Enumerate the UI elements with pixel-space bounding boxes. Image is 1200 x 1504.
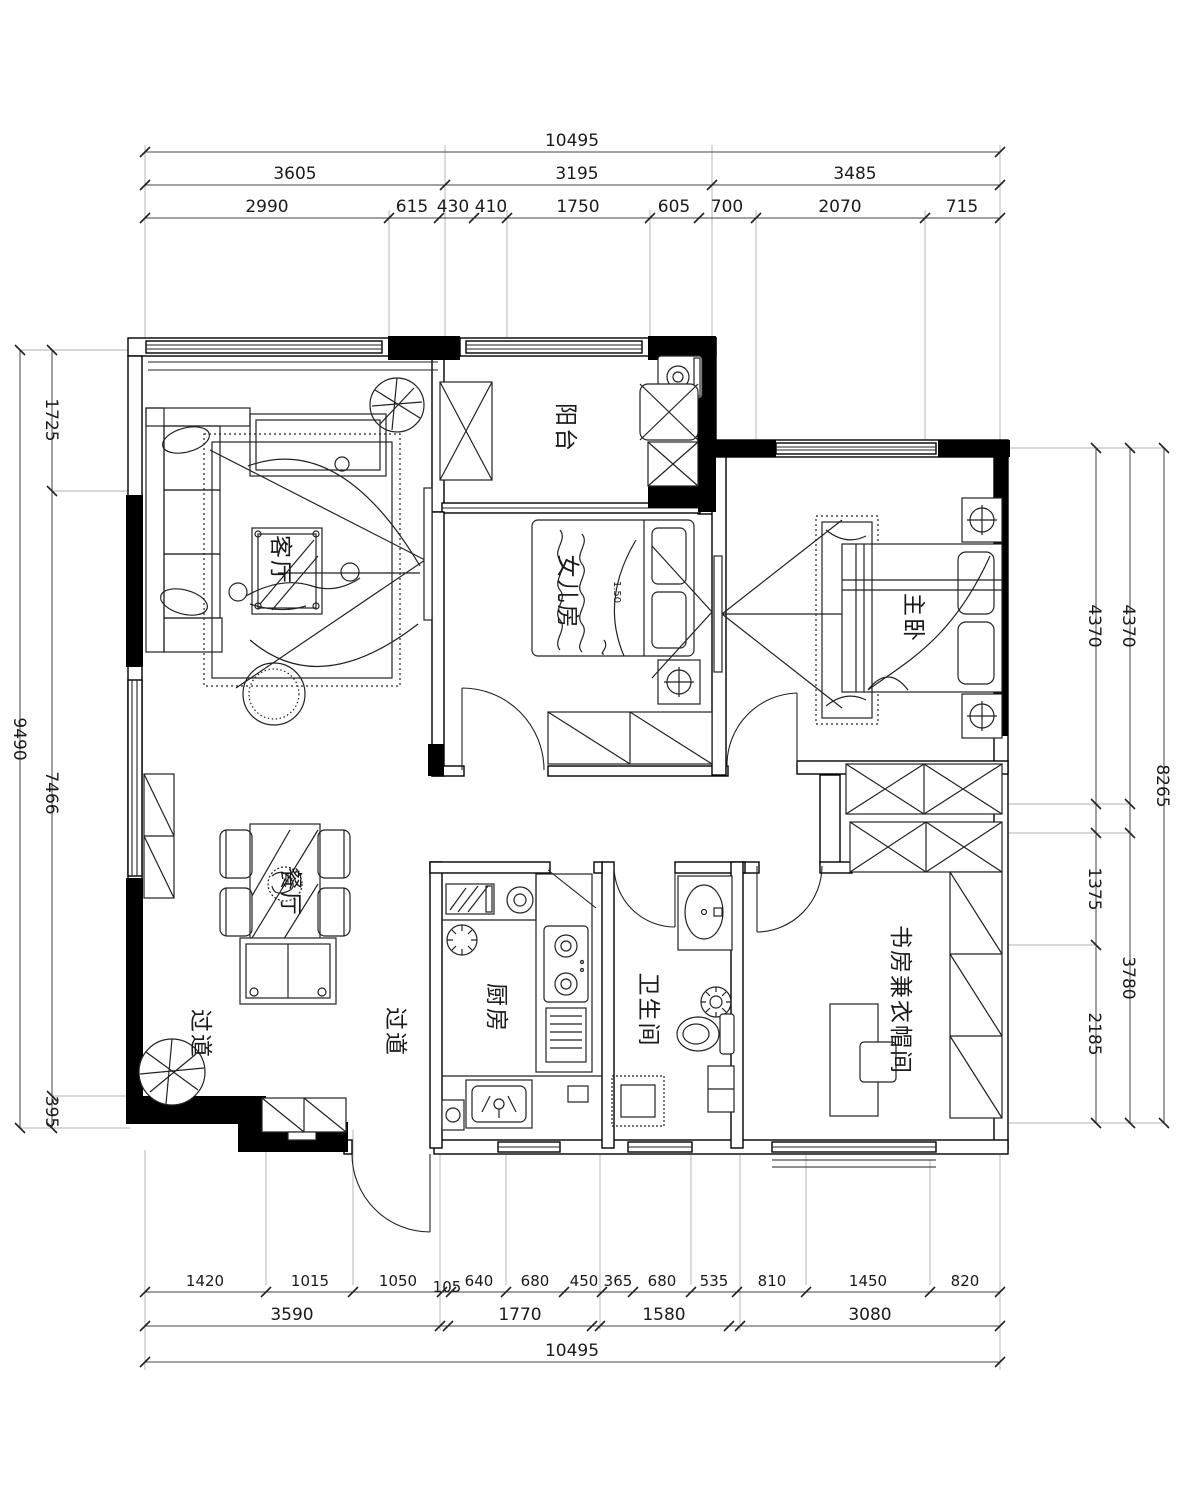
- living-plant: [370, 378, 424, 432]
- study-closet: [950, 872, 1002, 1118]
- dim-bot-450: 450: [570, 1272, 599, 1290]
- kitchen-cabinet-small: [442, 1100, 464, 1130]
- dim-bot-1580: 1580: [642, 1305, 685, 1325]
- dim-top-2070: 2070: [818, 197, 861, 217]
- dim-left-7466: 7466: [41, 771, 61, 814]
- daughter-room-door: [462, 688, 544, 770]
- microwave: [446, 884, 494, 914]
- shaft-column: [440, 382, 492, 480]
- desk: [830, 1004, 896, 1116]
- dim-right-4370a: 4370: [1084, 604, 1104, 647]
- dim-bot-3590: 3590: [270, 1305, 313, 1325]
- study-door: [757, 866, 822, 932]
- dim-top-2990: 2990: [245, 197, 288, 217]
- wall-cabinet: [144, 774, 174, 898]
- bath-window: [628, 1142, 692, 1152]
- dim-left-1725: 1725: [41, 398, 61, 441]
- dim-top-3605: 3605: [273, 164, 316, 184]
- dim-top-615: 615: [396, 197, 428, 217]
- dim-bot-1015: 1015: [291, 1272, 329, 1290]
- wardrobe-row-1: [846, 764, 1002, 814]
- dim-bot-680a: 680: [521, 1272, 550, 1290]
- kitchen-door-leaf: [548, 870, 596, 908]
- balcony: 阳台: [552, 356, 702, 486]
- dim-bot-535: 535: [700, 1272, 729, 1290]
- dim-right-3780: 3780: [1118, 956, 1138, 999]
- bath-cabinet: [708, 1066, 734, 1112]
- study-cloakroom: 书房兼衣帽间: [830, 764, 1002, 1118]
- living-room: 客厅: [146, 378, 432, 725]
- master-bedroom: 主卧: [714, 498, 1002, 738]
- dim-top-715: 715: [946, 197, 978, 217]
- dim-right-4370b: 4370: [1118, 604, 1138, 647]
- dim-bot-820: 820: [951, 1272, 980, 1290]
- windows: [128, 341, 936, 1167]
- dim-bot-1420: 1420: [186, 1272, 224, 1290]
- dim-top-3485: 3485: [833, 164, 876, 184]
- dim-top-430: 430: [437, 197, 469, 217]
- dim-bot-365: 365: [604, 1272, 633, 1290]
- dim-bot-810: 810: [758, 1272, 787, 1290]
- dim-top-1750: 1750: [556, 197, 599, 217]
- master-nightstand-top: [962, 498, 1002, 542]
- kitchen: 厨房: [442, 874, 602, 1130]
- dim-bot-680b: 680: [648, 1272, 677, 1290]
- dim-left-9490: 9490: [9, 717, 29, 760]
- daughter-bed-size: 1.50: [611, 581, 622, 603]
- master-window: [776, 443, 936, 454]
- daughter-room-label: 女儿房: [554, 555, 580, 630]
- dim-left-395: 395: [41, 1096, 61, 1128]
- dim-bot-1770: 1770: [498, 1305, 541, 1325]
- bathroom: 卫生间: [612, 876, 734, 1126]
- dim-top-700: 700: [711, 197, 743, 217]
- stove: [544, 926, 588, 1002]
- dim-bot-total: 10495: [545, 1341, 599, 1361]
- sideboard: [240, 938, 336, 1004]
- floor-plan-page: 10495 3605 3195 3485 2990 615 430 410 17…: [0, 0, 1200, 1500]
- tv-console: [250, 414, 386, 476]
- kitchen-grill: [546, 1008, 586, 1062]
- daughter-wardrobe: [548, 712, 712, 764]
- balcony-window: [466, 341, 642, 353]
- living-room-label: 客厅: [267, 535, 293, 585]
- sofa: [146, 408, 250, 652]
- exhaust-fan: [701, 987, 731, 1017]
- master-tv-panel: [714, 556, 722, 672]
- wardrobe-row-2: [850, 822, 1002, 872]
- dim-right-1375: 1375: [1084, 867, 1104, 910]
- dim-bot-3080: 3080: [848, 1305, 891, 1325]
- dining-window: [128, 680, 142, 876]
- toilet: [677, 1014, 734, 1054]
- floor-plan-drawing: 10495 3605 3195 3485 2990 615 430 410 17…: [0, 0, 1200, 1500]
- dining-area: 餐厅: [144, 774, 350, 1004]
- entry-door: [352, 1154, 430, 1232]
- balcony-cabinet: [640, 384, 698, 486]
- hall-right-label: 过道: [382, 1007, 408, 1057]
- dim-top-total: 10495: [545, 131, 599, 151]
- dim-top-3195: 3195: [555, 164, 598, 184]
- daughter-nightstand: [658, 660, 700, 704]
- dim-top-605: 605: [658, 197, 690, 217]
- dining-label: 餐厅: [277, 867, 303, 917]
- kitchen-window: [498, 1142, 560, 1152]
- study-label: 书房兼衣帽间: [887, 925, 913, 1075]
- dim-bot-105: 105: [433, 1278, 462, 1296]
- ottoman: [243, 663, 305, 725]
- dim-bot-1450: 1450: [849, 1272, 887, 1290]
- master-nightstand-bottom: [962, 694, 1002, 738]
- shower-mat: [612, 1076, 664, 1126]
- dim-right-8265: 8265: [1152, 764, 1172, 807]
- kitchen-label: 厨房: [483, 983, 509, 1033]
- dim-bot-640: 640: [465, 1272, 494, 1290]
- bath-label: 卫生间: [635, 973, 661, 1048]
- dim-bot-1050: 1050: [379, 1272, 417, 1290]
- master-room-door: [727, 693, 797, 765]
- living-tv-panel: [424, 488, 432, 620]
- dim-top-410: 410: [475, 197, 507, 217]
- hall-left-label: 过道: [187, 1009, 213, 1059]
- master-room-label: 主卧: [900, 593, 926, 643]
- bath-door: [614, 866, 675, 927]
- balcony-label: 阳台: [552, 403, 578, 453]
- kitchen-clock: [447, 925, 477, 955]
- dim-right-2185: 2185: [1084, 1012, 1104, 1055]
- bath-sink: [678, 876, 732, 950]
- kitchen-sink: [466, 1080, 532, 1128]
- daughter-room: 1.50 女儿房: [532, 520, 712, 764]
